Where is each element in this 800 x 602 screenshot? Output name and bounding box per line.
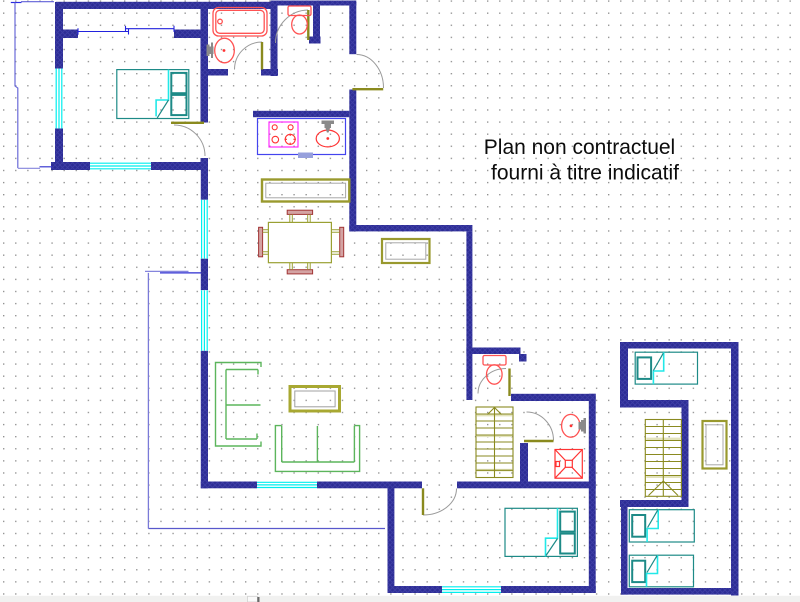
svg-text:Plan non contractuel: Plan non contractuel [484, 136, 675, 159]
svg-text:fourni à titre indicatif: fourni à titre indicatif [491, 162, 679, 185]
